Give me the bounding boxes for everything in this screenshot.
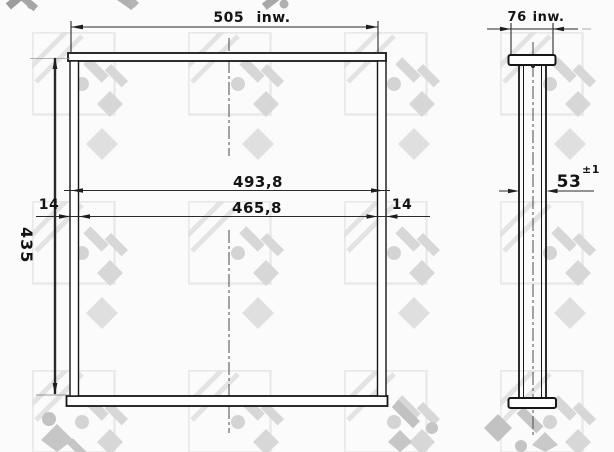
dim-14-right-label: 14 bbox=[392, 197, 412, 213]
front-top-bar bbox=[68, 53, 386, 61]
dim-465-label: 465,8 bbox=[232, 199, 282, 217]
front-left-side-bar bbox=[70, 61, 79, 396]
dim-14-left-label: 14 bbox=[39, 197, 59, 213]
front-bottom-bar bbox=[67, 396, 388, 406]
engineering-drawing-page: 505 inw. 493,8 465,8 14 14 435 76 inw. 5… bbox=[0, 0, 614, 452]
side-top-cap bbox=[509, 55, 556, 65]
drawing-canvas bbox=[0, 0, 614, 452]
dim-76-label: 76 inw. bbox=[508, 10, 565, 25]
front-right-side-bar bbox=[378, 61, 387, 396]
dim-435-label: 435 bbox=[17, 227, 36, 263]
side-bottom-cap bbox=[509, 398, 557, 408]
dim-53-tolerance-label: ±1 bbox=[582, 163, 600, 176]
nrf-watermark bbox=[0, 0, 614, 452]
dim-493-label: 493,8 bbox=[233, 173, 283, 191]
dim-53-label: 53 bbox=[557, 172, 582, 192]
dim-505-label: 505 inw. bbox=[213, 10, 290, 26]
